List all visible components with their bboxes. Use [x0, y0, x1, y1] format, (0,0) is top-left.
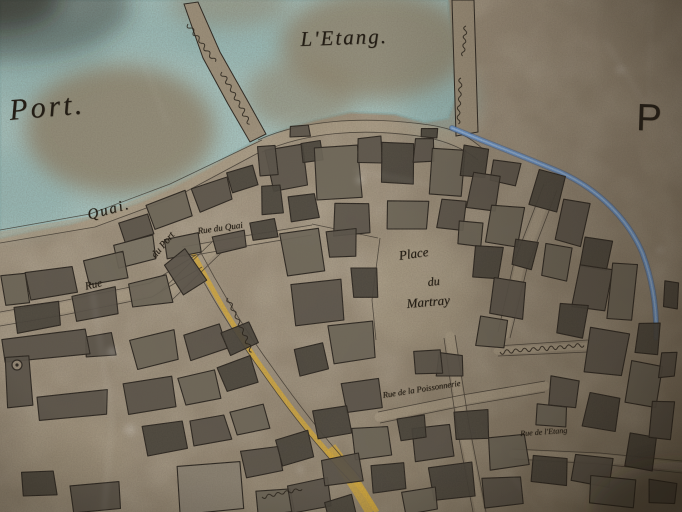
historic-map-photo: Port. L'Etang. Quai. Rue du Quai Place d… [0, 0, 682, 512]
map-canvas [0, 0, 682, 512]
